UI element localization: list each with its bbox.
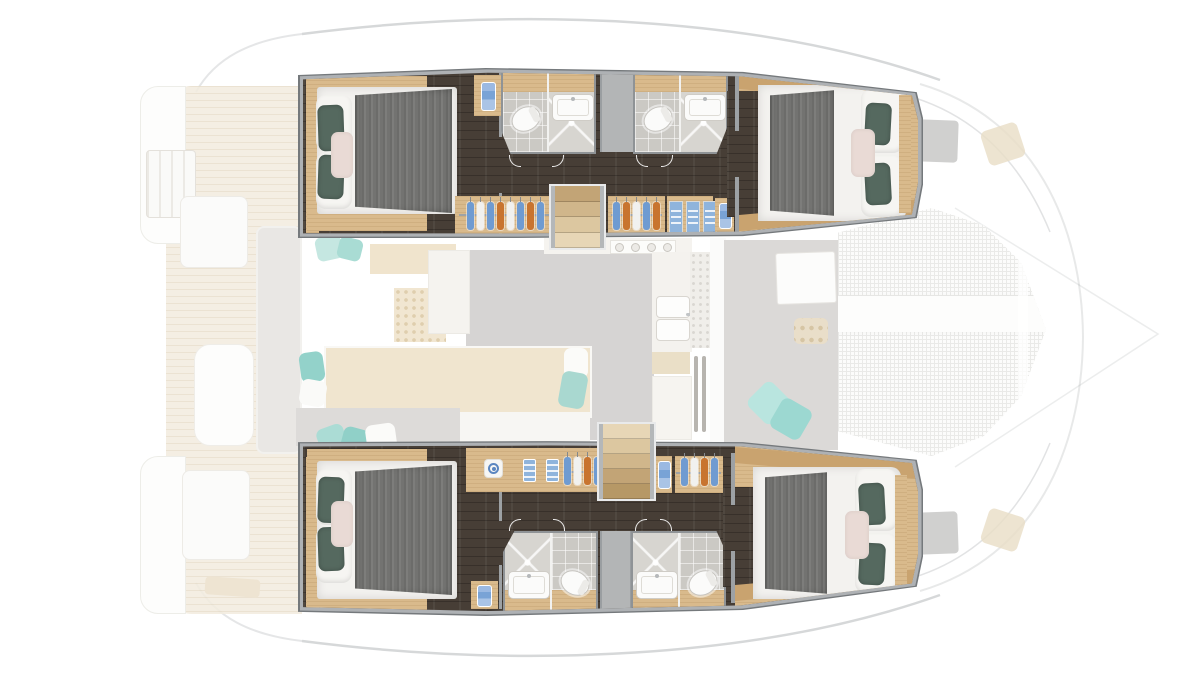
bathroom-aft	[503, 531, 598, 612]
hanger-icon	[681, 458, 688, 486]
hanger-rail	[677, 456, 721, 488]
pillow	[331, 132, 353, 178]
hanger-icon	[497, 202, 504, 230]
door-swing	[552, 155, 564, 167]
vent-louver	[702, 356, 706, 432]
bathroom-fwd	[633, 70, 728, 154]
hanger-icon	[701, 458, 708, 486]
boarding-plank	[204, 576, 260, 598]
hanger-icon	[623, 202, 630, 230]
saloon-floor	[466, 250, 654, 346]
hanger-icon	[643, 202, 650, 230]
stair-tread	[555, 233, 600, 249]
headboard	[895, 475, 907, 589]
folded-clothes-icon	[546, 459, 559, 482]
headboard	[899, 95, 911, 213]
bed-blanket	[355, 465, 452, 595]
bed-blanket	[765, 471, 827, 595]
folded-clothes-icon	[686, 201, 700, 233]
hanger-icon	[613, 202, 620, 230]
saloon-cabinet	[428, 250, 470, 334]
hanger-rail	[461, 200, 549, 232]
scatter-cushion	[298, 378, 328, 408]
door-swing	[509, 155, 521, 167]
hanger-rail	[612, 200, 661, 232]
room-divider	[547, 72, 549, 152]
room-divider	[550, 533, 552, 610]
hanger-rail	[564, 455, 600, 487]
towel	[477, 585, 492, 607]
bathroom-fwd	[631, 531, 726, 612]
door-swing	[635, 519, 647, 531]
mast-compartment	[600, 531, 632, 613]
bathroom-aft	[501, 70, 596, 154]
anchor-bridle-band	[838, 296, 1046, 332]
washbasin	[508, 571, 550, 599]
bed-blanket	[770, 89, 834, 217]
side-shelf	[307, 212, 427, 231]
hanger-icon	[584, 457, 591, 485]
stair-tread	[555, 217, 600, 233]
port-hull-interior	[303, 69, 918, 239]
hanger-icon	[527, 202, 534, 230]
bed-blanket	[355, 89, 452, 213]
galley-sink	[656, 319, 690, 341]
stair-tread	[603, 454, 650, 469]
cabin-bulkhead	[499, 565, 502, 609]
deck-hatch	[775, 251, 837, 305]
scatter-cushion	[298, 350, 326, 383]
washbasin	[636, 571, 678, 599]
companionway-stairs-port	[551, 186, 604, 248]
door-swing	[553, 519, 565, 531]
hanger-icon	[477, 202, 484, 230]
galley-wood-sole	[652, 352, 690, 374]
transom-starboard	[140, 456, 186, 614]
port-hull	[298, 64, 923, 244]
door-swing	[661, 155, 673, 167]
companionway-stairs-starboard	[599, 424, 654, 499]
door-swing	[660, 519, 672, 531]
clothes-cubbies	[669, 201, 717, 233]
mast-compartment	[600, 72, 635, 152]
folded-clothes-icon	[669, 201, 683, 233]
room-divider	[678, 533, 680, 610]
towel	[658, 461, 671, 489]
stern-locker	[182, 470, 250, 560]
hanger-icon	[487, 202, 494, 230]
vent-louver	[694, 356, 698, 432]
pillow	[851, 129, 875, 177]
catamaran-deck-plan	[0, 0, 1200, 675]
stern-locker	[180, 196, 248, 268]
galley-control-panel	[690, 252, 712, 348]
hanger-icon	[537, 202, 544, 230]
hanger-icon	[507, 202, 514, 230]
folded-clothes-icon	[523, 459, 536, 482]
hanger-icon	[517, 202, 524, 230]
stair-tread	[603, 424, 650, 439]
towel	[481, 82, 496, 111]
hanger-icon	[467, 202, 474, 230]
washbasin	[552, 94, 594, 121]
stair-tread	[555, 202, 600, 218]
stair-tread	[603, 469, 650, 484]
stair-tread	[555, 186, 600, 202]
pillow	[331, 501, 353, 547]
cup-tray	[794, 318, 828, 344]
hanger-icon	[633, 202, 640, 230]
galley-sink	[656, 296, 690, 318]
stair-tread	[603, 439, 650, 454]
hanger-icon	[691, 458, 698, 486]
hanger-icon	[564, 457, 571, 485]
door-swing	[509, 519, 521, 531]
cockpit-table	[194, 344, 254, 446]
washbasin	[684, 94, 726, 121]
room-divider	[679, 72, 681, 152]
hanger-icon	[653, 202, 660, 230]
hanger-icon	[711, 458, 718, 486]
stair-tread	[603, 484, 650, 499]
door-swing	[636, 155, 648, 167]
pillow	[845, 511, 869, 559]
hanger-icon	[574, 457, 581, 485]
compass-plate-icon	[484, 459, 503, 478]
